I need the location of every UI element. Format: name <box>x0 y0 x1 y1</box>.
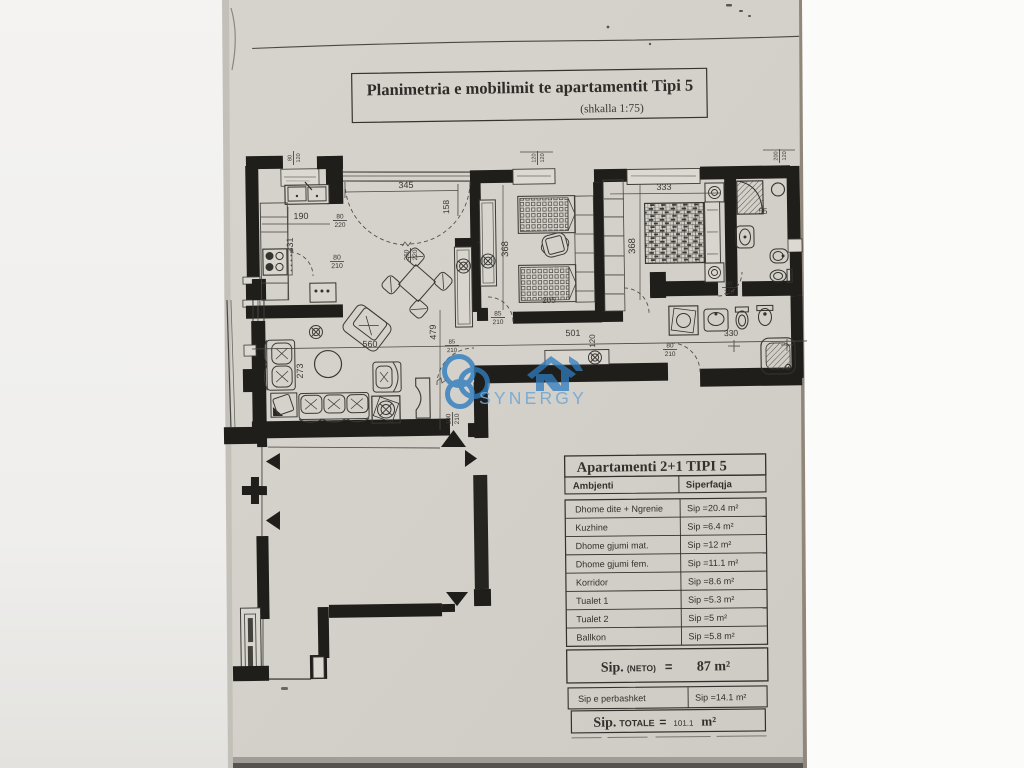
svg-text:SYNERGY: SYNERGY <box>479 388 587 408</box>
svg-text:368: 368 <box>500 241 511 257</box>
svg-text:210: 210 <box>331 263 343 270</box>
svg-text:=: = <box>665 659 673 674</box>
svg-text:Dhome dite + Ngrenie: Dhome dite + Ngrenie <box>575 504 663 515</box>
svg-text:260: 260 <box>403 249 410 260</box>
svg-text:Kuzhine: Kuzhine <box>575 522 608 532</box>
svg-text:331: 331 <box>285 237 295 252</box>
svg-text:210: 210 <box>447 348 458 354</box>
svg-text:Sip.: Sip. <box>593 715 616 730</box>
svg-text:(NETO): (NETO) <box>627 663 656 673</box>
svg-text:120: 120 <box>296 153 302 162</box>
svg-text:80: 80 <box>333 254 341 261</box>
svg-text:158: 158 <box>441 200 451 215</box>
svg-text:210: 210 <box>454 413 461 424</box>
svg-text:501: 501 <box>565 328 580 338</box>
svg-text:120: 120 <box>588 334 597 348</box>
svg-text:Sip =11.1 m²: Sip =11.1 m² <box>688 558 739 569</box>
svg-text:Sip =5.8 m²: Sip =5.8 m² <box>688 631 734 641</box>
svg-text:560: 560 <box>362 339 377 349</box>
svg-text:210: 210 <box>724 290 735 296</box>
svg-text:210: 210 <box>493 319 504 326</box>
svg-text:479: 479 <box>428 325 438 340</box>
svg-text:Sip =8.6 m²: Sip =8.6 m² <box>688 576 734 586</box>
svg-text:Ballkon: Ballkon <box>576 632 606 642</box>
svg-text:Sip =14.1 m²: Sip =14.1 m² <box>695 692 746 703</box>
svg-text:101.1: 101.1 <box>673 719 694 728</box>
svg-text:Sip =12 m²: Sip =12 m² <box>687 539 731 549</box>
svg-text:(shkalla 1:75): (shkalla 1:75) <box>580 103 644 116</box>
svg-text:200: 200 <box>773 151 779 160</box>
svg-text:80: 80 <box>287 155 293 161</box>
svg-text:210: 210 <box>665 351 676 358</box>
svg-text:Tualet 2: Tualet 2 <box>576 614 608 624</box>
svg-text:Siperfaqja: Siperfaqja <box>686 479 733 490</box>
svg-text:80: 80 <box>336 213 344 220</box>
svg-text:m²: m² <box>701 713 716 728</box>
svg-text:Sip =5 m²: Sip =5 m² <box>688 613 727 623</box>
svg-text:100: 100 <box>445 413 452 424</box>
svg-text:120: 120 <box>540 153 546 162</box>
svg-text:345: 345 <box>398 180 413 190</box>
svg-text:368: 368 <box>627 238 638 254</box>
svg-text:220: 220 <box>412 249 419 260</box>
svg-text:=: = <box>659 715 666 729</box>
svg-text:273: 273 <box>295 363 305 378</box>
svg-text:Dhome gjumi mat.: Dhome gjumi mat. <box>575 540 648 551</box>
svg-text:Tualet 1: Tualet 1 <box>576 596 608 606</box>
svg-text:333: 333 <box>656 182 671 192</box>
svg-text:Ambjenti: Ambjenti <box>573 480 614 491</box>
svg-text:205: 205 <box>542 296 556 305</box>
svg-text:Dhome gjumi fem.: Dhome gjumi fem. <box>576 559 649 570</box>
svg-text:Sip =20.4 m²: Sip =20.4 m² <box>687 503 738 514</box>
svg-text:120: 120 <box>531 153 537 162</box>
svg-text:120: 120 <box>782 151 788 160</box>
svg-text:80: 80 <box>726 281 733 287</box>
svg-text:TOTALE: TOTALE <box>619 718 654 728</box>
svg-text:Korridor: Korridor <box>576 577 608 587</box>
svg-text:Apartamenti 2+1 TIPI 5: Apartamenti 2+1 TIPI 5 <box>577 458 727 476</box>
svg-text:Sip.: Sip. <box>601 660 624 675</box>
svg-text:Sip e perbashket: Sip e perbashket <box>578 693 646 704</box>
svg-text:Sip =5.3 m²: Sip =5.3 m² <box>688 594 734 604</box>
svg-text:220: 220 <box>335 222 346 229</box>
svg-text:85: 85 <box>449 339 456 345</box>
svg-text:Sip =6.4 m²: Sip =6.4 m² <box>687 521 733 531</box>
svg-text:85: 85 <box>494 310 502 317</box>
svg-text:55: 55 <box>758 207 768 216</box>
svg-text:330: 330 <box>724 328 739 338</box>
svg-text:190: 190 <box>293 211 308 221</box>
svg-text:80: 80 <box>666 342 674 349</box>
svg-text:87 m²: 87 m² <box>697 659 731 674</box>
